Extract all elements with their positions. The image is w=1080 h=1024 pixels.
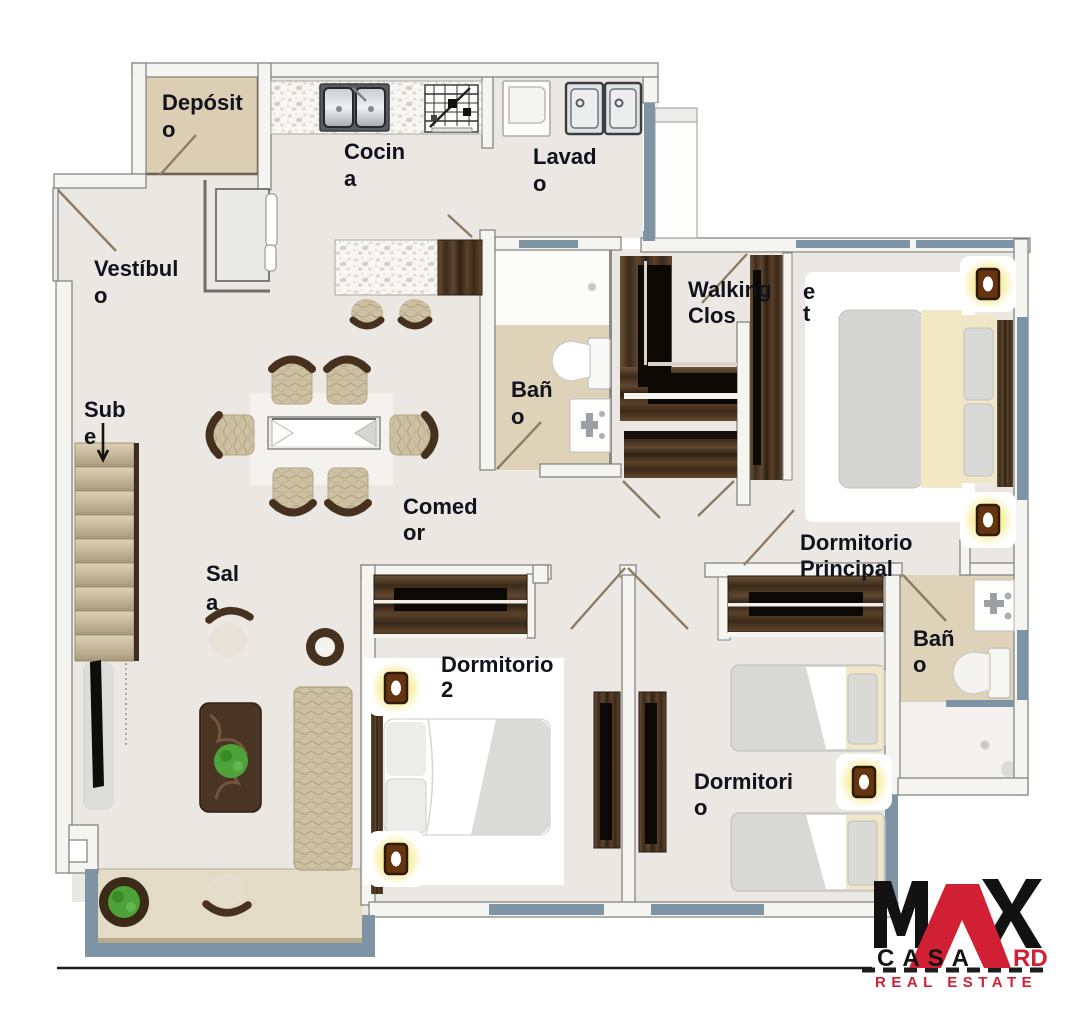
svg-text:Sal: Sal — [206, 561, 239, 586]
svg-text:Dormitorio: Dormitorio — [441, 652, 553, 677]
svg-text:RD: RD — [1013, 945, 1048, 972]
svg-text:o: o — [533, 171, 546, 196]
svg-text:Comed: Comed — [403, 494, 478, 519]
svg-text:Vestíbul: Vestíbul — [94, 256, 178, 281]
svg-text:Dormitorio: Dormitorio — [800, 530, 912, 555]
svg-text:a: a — [344, 166, 357, 191]
svg-text:REAL ESTATE: REAL ESTATE — [875, 974, 1037, 991]
svg-text:t: t — [803, 301, 811, 326]
svg-text:o: o — [94, 283, 107, 308]
svg-text:e: e — [84, 424, 96, 449]
svg-text:Bañ: Bañ — [913, 626, 955, 651]
svg-text:Clos: Clos — [688, 303, 736, 328]
svg-text:Principal: Principal — [800, 556, 893, 581]
svg-text:Cocin: Cocin — [344, 139, 405, 164]
svg-text:2: 2 — [441, 677, 453, 702]
svg-text:a: a — [206, 590, 219, 615]
svg-text:or: or — [403, 520, 425, 545]
svg-text:Depósit: Depósit — [162, 90, 243, 115]
svg-text:Lavad: Lavad — [533, 144, 597, 169]
svg-text:Sub: Sub — [84, 397, 126, 422]
svg-text:o: o — [511, 404, 524, 429]
svg-text:Walking: Walking — [688, 277, 772, 302]
svg-text:Bañ: Bañ — [511, 377, 553, 402]
svg-text:o: o — [694, 795, 707, 820]
svg-text:o: o — [913, 652, 926, 677]
svg-text:CASA: CASA — [877, 945, 977, 972]
svg-text:Dormitori: Dormitori — [694, 769, 793, 794]
svg-text:o: o — [162, 117, 175, 142]
